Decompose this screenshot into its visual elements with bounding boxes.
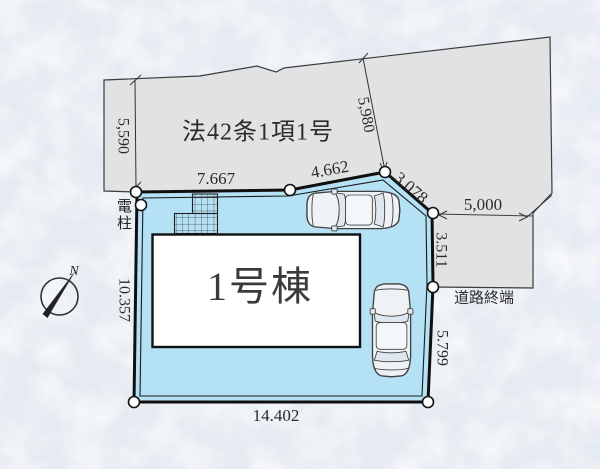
survey-point	[131, 187, 142, 198]
dim-lot-right-lower: 5.799	[433, 330, 450, 366]
survey-point	[129, 397, 140, 408]
site-plan-svg: 1号棟 法42条1項1号 道路終端 5,590 5,980 5,000 7.66…	[0, 0, 600, 469]
dim-lot-bottom: 14.402	[253, 406, 300, 425]
road-law-label: 法42条1項1号	[182, 119, 334, 146]
building: 1号棟	[153, 235, 361, 348]
survey-point	[428, 282, 439, 293]
survey-point	[428, 208, 439, 219]
dim-lot-left: 10.357	[115, 278, 132, 322]
utility-pole-label: 電柱	[115, 198, 130, 232]
site-plan: 1号棟 法42条1項1号 道路終端 5,590 5,980 5,000 7.66…	[0, 0, 600, 469]
compass-north-label: N	[68, 264, 79, 279]
survey-point	[380, 167, 391, 178]
road-terminus-label: 道路終端	[454, 289, 514, 306]
survey-point	[285, 185, 296, 196]
dim-road-width-terminus: 5,000	[464, 195, 502, 214]
car-icon	[307, 189, 400, 231]
survey-point	[136, 200, 147, 211]
survey-point	[423, 397, 434, 408]
building-name-label: 1号棟	[207, 264, 313, 309]
dim-road-width-left: 5,590	[114, 118, 131, 154]
car-icon	[370, 284, 413, 377]
dim-lot-top: 7.667	[197, 169, 236, 188]
dim-lot-right-upper: 3.511	[432, 232, 449, 267]
